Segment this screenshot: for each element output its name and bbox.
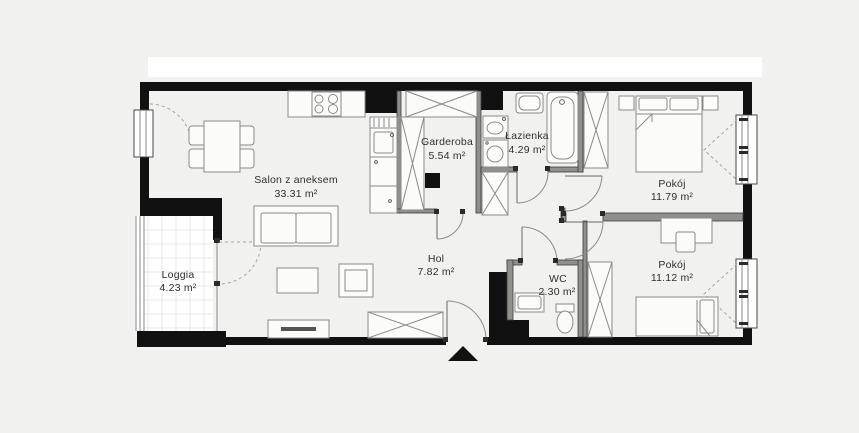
entry-nook-wall-v xyxy=(489,272,507,345)
floor-plan-page: Salon z aneksem 33.31 m² Garderoba 5.54 … xyxy=(0,0,859,433)
wardrobe-icon xyxy=(588,262,612,337)
room-label-lazienka: Łazienka 4.29 m² xyxy=(505,130,549,156)
room-area: 2.30 m² xyxy=(539,286,576,298)
room-name: Garderoba xyxy=(421,136,473,148)
wall-kitchen-garderoba xyxy=(397,91,401,213)
room-area: 7.82 m² xyxy=(418,266,455,278)
balcony-door-swing xyxy=(219,242,261,284)
room-name: Pokój xyxy=(658,178,685,190)
loggia xyxy=(136,216,261,331)
room-label-loggia: Loggia 4.23 m² xyxy=(160,269,197,294)
kitchen-cabinet-column xyxy=(370,117,397,213)
loggia-top-bar xyxy=(140,198,222,216)
bathtub-icon xyxy=(547,92,578,163)
armchair-icon xyxy=(339,264,373,297)
wall-wc-west xyxy=(507,260,513,320)
coffee-table-icon xyxy=(277,268,318,293)
room-label-wc: WC 2.30 m² xyxy=(539,273,576,298)
room-area: 33.31 m² xyxy=(274,188,317,200)
window-swing-dashed xyxy=(150,104,192,146)
room-area: 5.54 m² xyxy=(429,150,466,162)
tv-stand-icon xyxy=(268,320,329,338)
entry-nook-wall-h xyxy=(507,320,529,345)
sofa-icon xyxy=(254,206,338,246)
desk-icon xyxy=(661,218,712,252)
wc-door xyxy=(518,227,558,263)
room-name: Łazienka xyxy=(505,130,549,142)
entrance-door xyxy=(443,301,488,342)
room-area: 4.29 m² xyxy=(509,144,546,156)
stove-icon xyxy=(312,92,341,116)
window-salon-left xyxy=(134,104,192,157)
wardrobe-icon xyxy=(482,172,508,215)
wardrobe-icon xyxy=(584,92,608,168)
entrance-arrow-icon xyxy=(448,346,478,361)
wall-bathroom-bedroom1 xyxy=(578,91,583,172)
room-area: 11.12 m² xyxy=(651,272,694,284)
room-label-pokoj-1: Pokój 11.79 m² xyxy=(651,178,694,203)
tv-icon xyxy=(281,327,316,331)
floor-plan-svg: Salon z aneksem 33.31 m² Garderoba 5.54 … xyxy=(0,0,859,433)
room-name: Loggia xyxy=(162,269,195,281)
room-name: Salon z aneksem xyxy=(254,174,338,186)
garderoba-door xyxy=(434,209,465,239)
wardrobe-icon xyxy=(368,312,443,338)
room-name: Hol xyxy=(428,253,444,265)
washing-machine-icon xyxy=(483,140,508,167)
bathroom-shaft xyxy=(481,91,503,110)
room-label-pokoj-2: Pokój 11.12 m² xyxy=(651,259,694,284)
wall-right-mid xyxy=(743,184,752,259)
room-area: 4.23 m² xyxy=(160,282,197,294)
kitchen-shaft xyxy=(365,91,398,113)
loggia-bottom-bar xyxy=(137,331,226,347)
window-swing-dashed xyxy=(704,120,737,180)
window-bedroom1-right xyxy=(704,115,757,184)
garderoba-shaft xyxy=(425,173,440,188)
bathroom-door xyxy=(513,166,550,203)
toilet-icon xyxy=(556,304,574,333)
wall-top xyxy=(140,82,752,91)
room-name: Pokój xyxy=(658,259,685,271)
bedroom1-furniture xyxy=(584,92,718,172)
balcony-door-jamb xyxy=(214,281,220,286)
wardrobe-icon xyxy=(401,117,424,210)
room-label-hol: Hol 7.82 m² xyxy=(418,253,455,278)
wall-bathroom-south-left xyxy=(481,167,517,172)
double-bed-icon xyxy=(619,96,718,172)
room-area: 11.79 m² xyxy=(651,191,694,203)
wall-right-lower xyxy=(743,328,752,345)
room-label-salon: Salon z aneksem 33.31 m² xyxy=(254,174,338,200)
wall-left-upper xyxy=(140,82,149,112)
wall-wc-east xyxy=(578,260,583,337)
single-bed-icon xyxy=(636,297,718,336)
washbasin-icon xyxy=(516,93,543,113)
room-name: WC xyxy=(549,273,567,285)
wardrobe-icon xyxy=(406,91,477,117)
wall-bedroom2-west xyxy=(583,221,587,337)
wall-left-mid xyxy=(140,156,149,200)
room-label-garderoba: Garderoba 5.54 m² xyxy=(421,136,473,162)
wall-right-upper xyxy=(743,82,752,115)
dining-table-icon xyxy=(189,121,254,172)
